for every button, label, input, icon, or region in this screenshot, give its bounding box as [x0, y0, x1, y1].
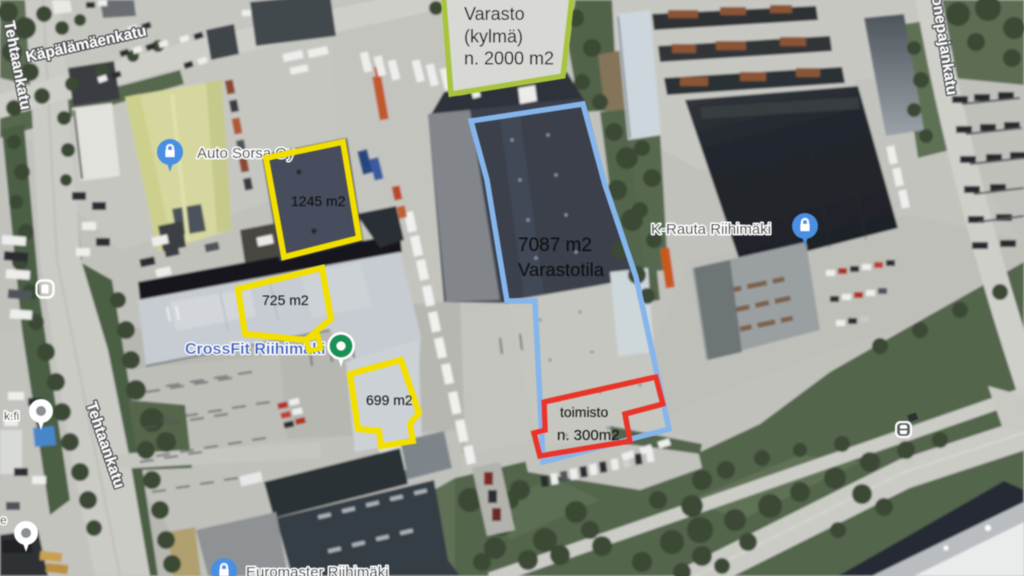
svg-text:toimisto: toimisto — [560, 404, 608, 420]
svg-text:699 m2: 699 m2 — [366, 392, 413, 408]
svg-text:725 m2: 725 m2 — [262, 292, 309, 308]
svg-text:Varasto: Varasto — [464, 4, 525, 24]
svg-text:Euromaster Riihimäki: Euromaster Riihimäki — [246, 564, 389, 576]
svg-text:Varastotila: Varastotila — [518, 259, 605, 280]
svg-text:n. 2000 m2: n. 2000 m2 — [464, 49, 554, 69]
svg-text:n. 300m2: n. 300m2 — [557, 427, 620, 444]
svg-text:CrossFit Riihimäki: CrossFit Riihimäki — [185, 341, 325, 358]
svg-text:(kylmä): (kylmä) — [464, 27, 523, 47]
svg-text:k.fi: k.fi — [4, 409, 19, 423]
svg-text:1245 m2: 1245 m2 — [291, 193, 346, 209]
svg-text:K-Rauta Riihimäki: K-Rauta Riihimäki — [651, 221, 771, 238]
svg-text:7087 m2: 7087 m2 — [518, 235, 592, 256]
svg-text:e: e — [0, 513, 7, 527]
